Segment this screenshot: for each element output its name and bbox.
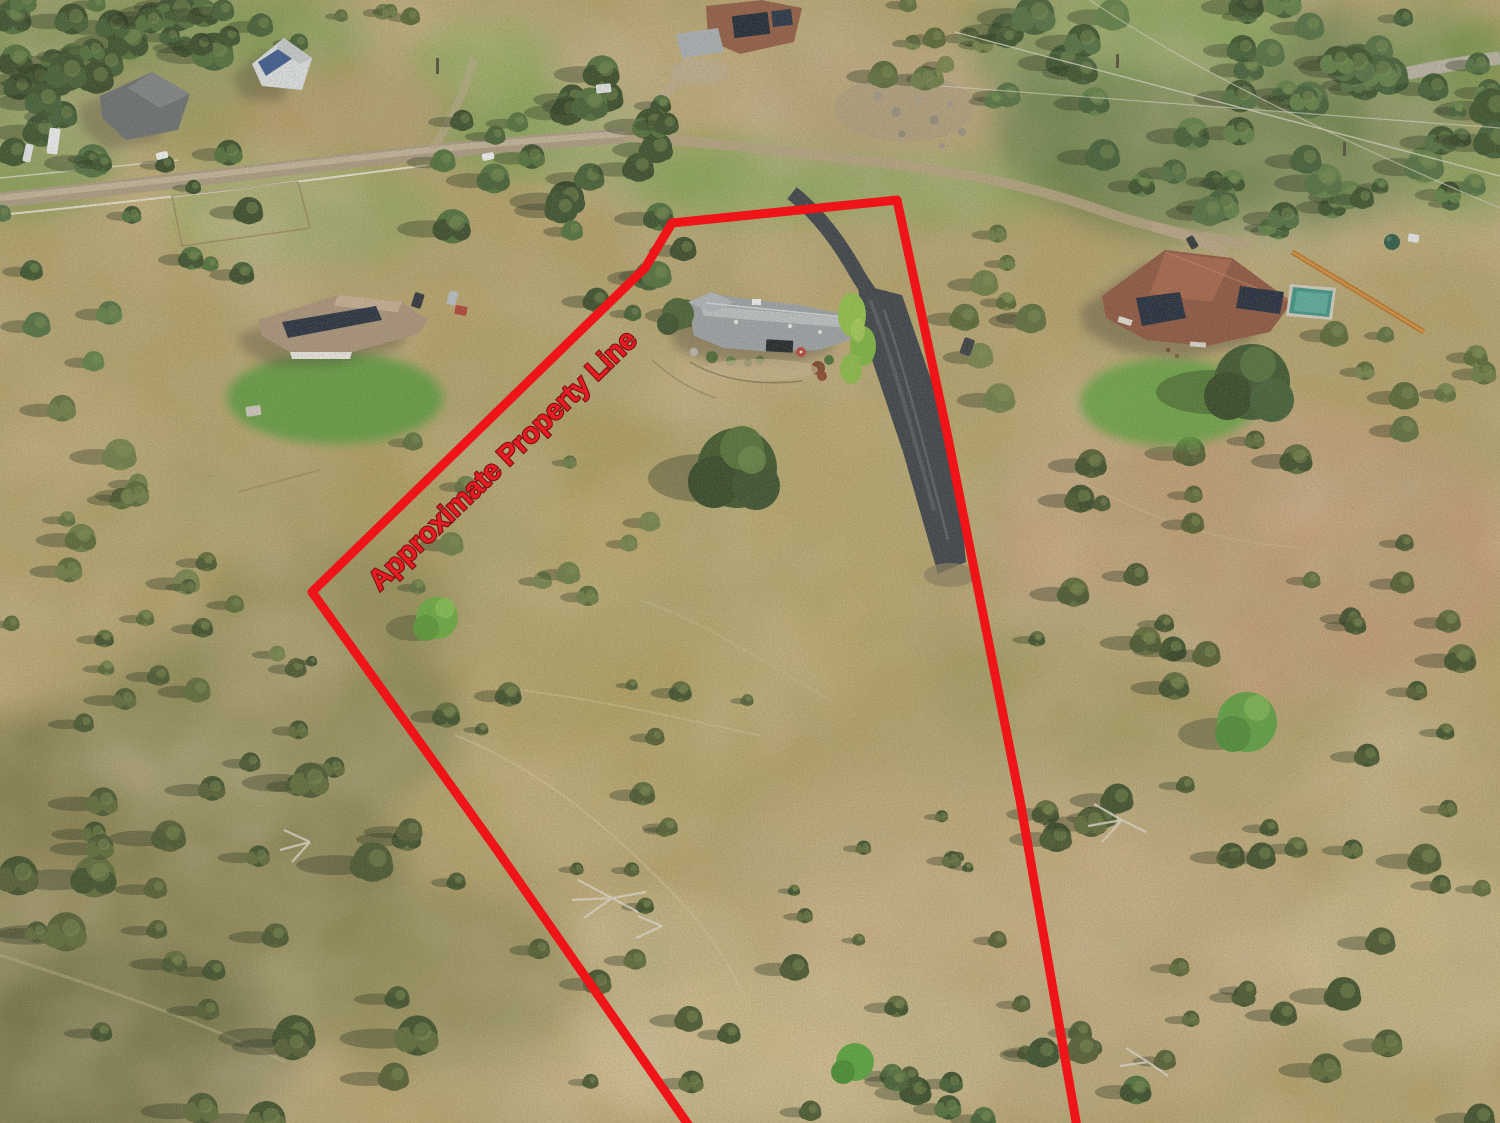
grain-overlay-light [0,0,1500,1123]
aerial-photo: Approximate Property Line [0,0,1500,1123]
aerial-photo-canvas: Approximate Property Line [0,0,1500,1123]
